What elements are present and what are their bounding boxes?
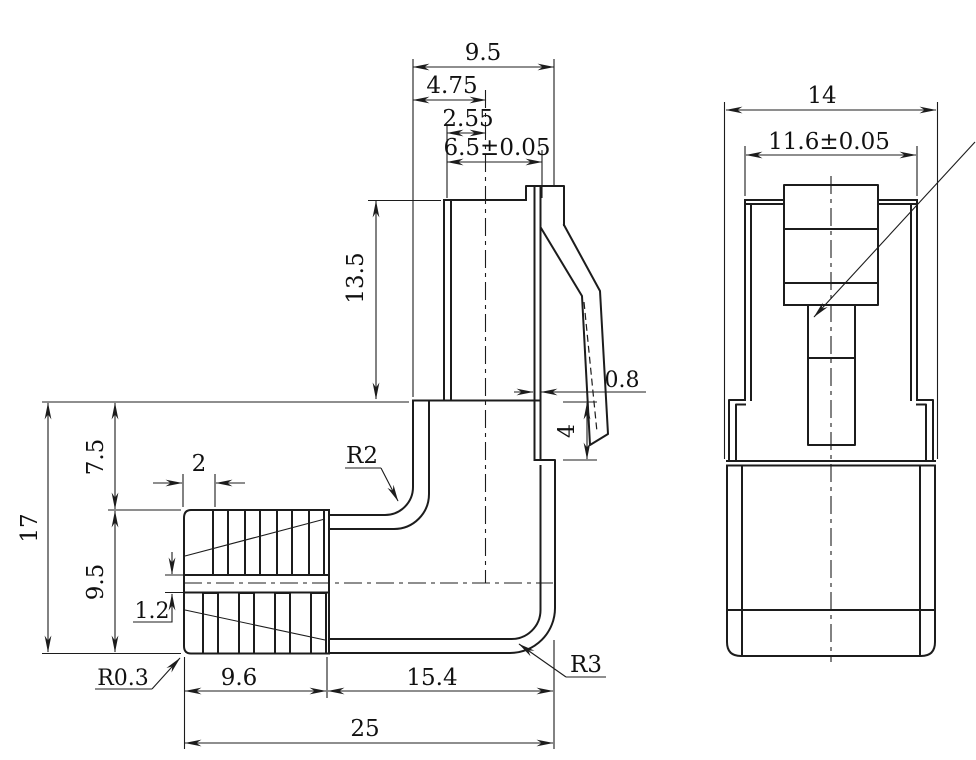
dim-upper-height: 7.5: [83, 439, 109, 476]
dim-nose-width: 6.5±0.05: [443, 135, 550, 161]
dim-overall-height: 17: [17, 513, 43, 542]
boot-upper-slots: [213, 511, 324, 575]
technical-drawing: 9.5 4.75 2.55 6.5±0.05 13.5 17 7.5 9.5 2…: [0, 0, 976, 760]
dim-top-half-width: 4.75: [426, 73, 477, 99]
dim-lower-height: 9.5: [83, 564, 109, 601]
dim-boot-length: 9.6: [221, 665, 258, 691]
dim-overall-width: 14: [807, 83, 836, 109]
dim-top-width: 9.5: [465, 40, 502, 66]
dim-latch-wall: 0.8: [605, 368, 640, 393]
dim-rib-pitch: 2: [192, 451, 207, 477]
drawing-canvas: 9.5 4.75 2.55 6.5±0.05 13.5 17 7.5 9.5 2…: [0, 0, 976, 760]
dim-overall-length: 25: [350, 716, 379, 742]
latch-top-block: [526, 186, 564, 225]
side-view: 9.5 4.75 2.55 6.5±0.05 13.5 17 7.5 9.5 2…: [17, 40, 646, 749]
dim-inner-bend-radius: R2: [346, 443, 378, 469]
dim-boot-corner-radius: R0.3: [97, 666, 149, 691]
dim-outer-bend-radius: R3: [570, 652, 602, 678]
dim-contact-span: 2.55: [442, 106, 493, 132]
dim-center-gap: 1.2: [135, 599, 170, 624]
dim-front-nose-width: 11.6±0.05: [768, 129, 890, 155]
front-view: 14 11.6±0.05: [725, 83, 976, 662]
latch-arm: [541, 225, 608, 445]
dim-nose-height: 13.5: [343, 252, 369, 303]
dim-arm-length: 15.4: [406, 665, 457, 691]
front-view-dimension-labels: 14 11.6±0.05: [768, 83, 890, 155]
strain-relief-boot: [184, 510, 329, 654]
side-view-dimension-lines: [48, 67, 646, 743]
boot-lower-slots: [203, 593, 326, 653]
dim-shoulder-height: 4: [555, 424, 580, 438]
